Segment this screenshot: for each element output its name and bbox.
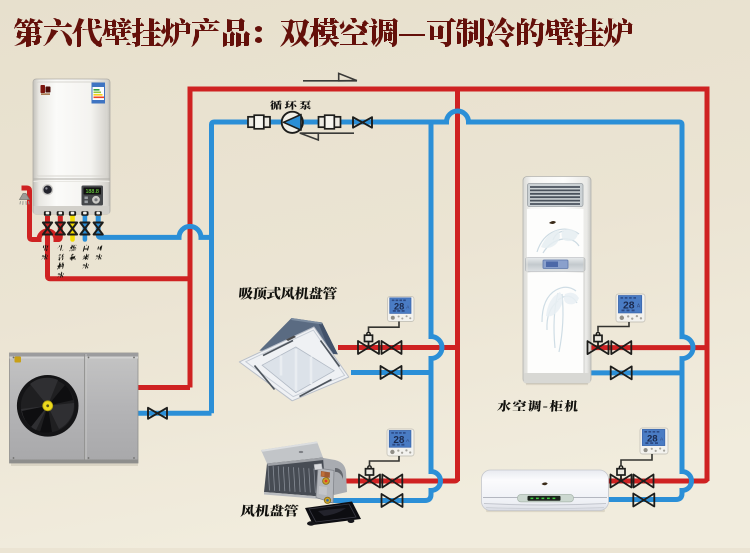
svg-text:A: A bbox=[637, 304, 641, 310]
svg-text:188.8: 188.8 bbox=[85, 189, 99, 195]
svg-text:28: 28 bbox=[647, 433, 658, 444]
svg-text:28: 28 bbox=[394, 301, 404, 311]
svg-text:28: 28 bbox=[393, 435, 405, 446]
svg-text:28: 28 bbox=[623, 301, 635, 312]
